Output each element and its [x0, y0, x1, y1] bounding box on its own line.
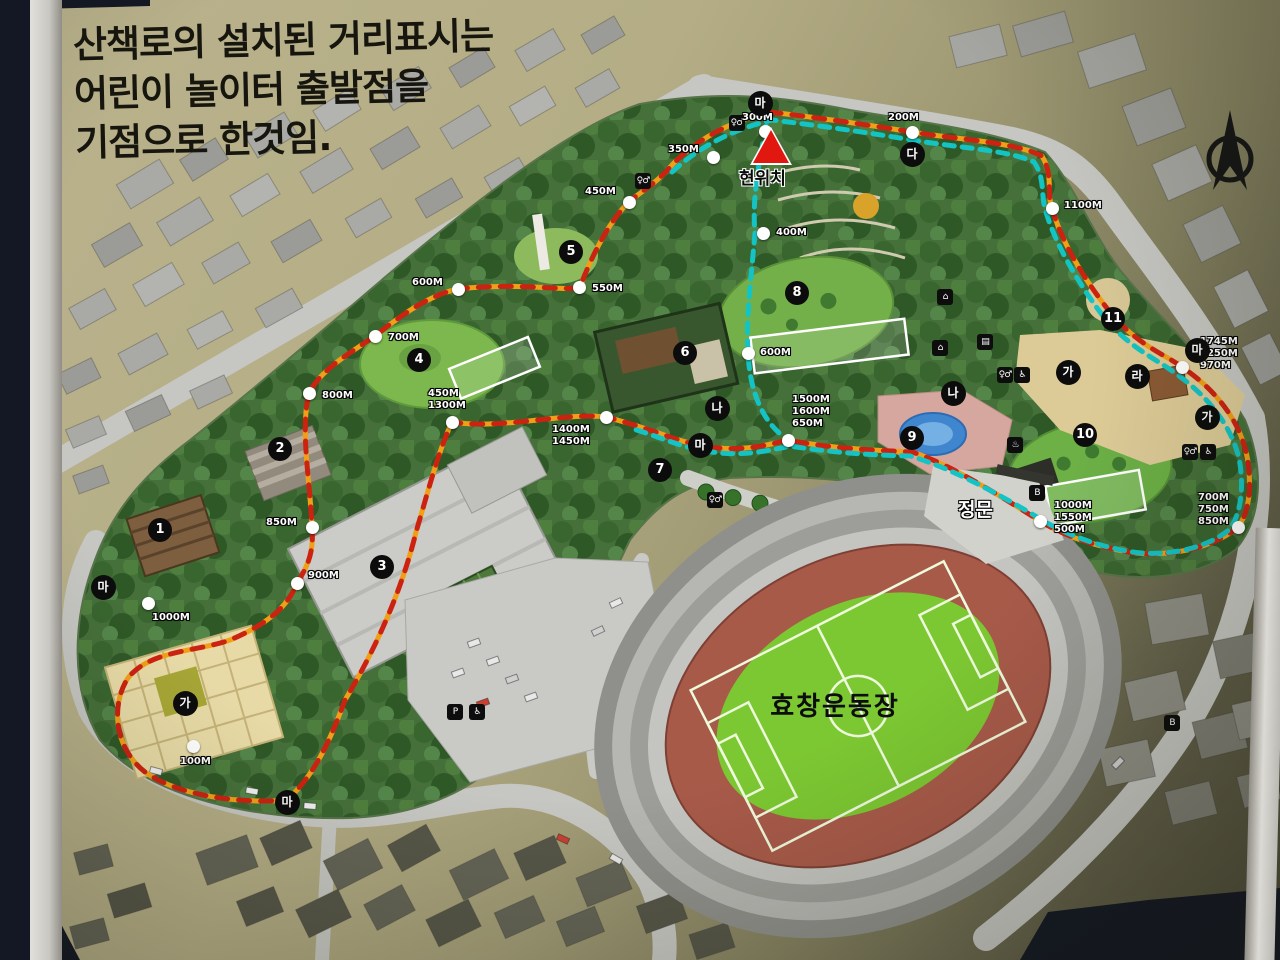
current-location-label: 현위치: [739, 164, 786, 189]
map-marker-나: 나: [941, 381, 966, 406]
trail-distance-node: [1034, 515, 1047, 528]
parking-icon: P: [447, 704, 463, 720]
map-marker-7: 7: [648, 458, 672, 482]
distance-label: 900M: [308, 570, 339, 582]
map-marker-가: 가: [173, 691, 198, 716]
trail-distance-node: [707, 151, 720, 164]
map-marker-다: 다: [900, 142, 925, 167]
distance-label: 450M1300M: [428, 388, 466, 412]
distance-label: 1400M1450M: [552, 424, 590, 448]
map-marker-마: 마: [688, 433, 713, 458]
distance-label: 600M: [412, 277, 443, 289]
park-map-photo: 산책로의 설치된 거리표시는 어린이 놀이터 출발점을 기점으로 한것임. 현위…: [0, 0, 1280, 960]
map-marker-4: 4: [407, 348, 431, 372]
trail-distance-node: [573, 281, 586, 294]
distance-label: 1000M: [152, 612, 190, 624]
screen-bezel-left: [30, 0, 62, 960]
trail-distance-node: [906, 126, 919, 139]
wheelchair-icon: ♿: [1014, 367, 1030, 383]
trail-distance-node: [291, 577, 304, 590]
wheelchair-icon: ♿: [469, 704, 485, 720]
trail-distance-node: [369, 330, 382, 343]
trail-distance-node: [142, 597, 155, 610]
distance-label: 200M: [888, 112, 919, 124]
restroom-icon: ♀♂: [1182, 444, 1198, 460]
current-location-triangle-icon: [753, 130, 789, 163]
restroom-icon: ♀♂: [635, 173, 651, 189]
map-marker-라: 라: [1125, 364, 1150, 389]
map-marker-1: 1: [148, 518, 172, 542]
map-note-line: 산책로의 설치된 거리표시는: [72, 11, 493, 70]
map-marker-11: 11: [1101, 307, 1125, 331]
bus-stop-icon: B: [1164, 715, 1180, 731]
map-marker-가: 가: [1195, 405, 1220, 430]
trail-distance-node: [623, 196, 636, 209]
trail-distance-node: [1046, 202, 1059, 215]
distance-label: 700M: [388, 332, 419, 344]
map-marker-2: 2: [268, 437, 292, 461]
kiosk-icon: ▤: [977, 334, 993, 350]
stadium-label: 효창운동장: [735, 686, 935, 723]
trail-distance-node: [1176, 361, 1189, 374]
photo-frame-left: [0, 0, 30, 960]
map-marker-6: 6: [673, 341, 697, 365]
distance-label: 800M: [322, 390, 353, 402]
trail-distance-node: [303, 387, 316, 400]
trail-distance-node: [1232, 521, 1245, 534]
distance-label: 700M750M850M: [1198, 492, 1229, 529]
trail-distance-node: [187, 740, 200, 753]
distance-label: 450M: [585, 186, 616, 198]
map-marker-8: 8: [785, 281, 809, 305]
bus-stop-icon: B: [1029, 485, 1045, 501]
map-marker-마: 마: [748, 91, 773, 116]
map-note: 산책로의 설치된 거리표시는 어린이 놀이터 출발점을 기점으로 한것임.: [72, 11, 495, 168]
restroom-icon: ♀♂: [997, 367, 1013, 383]
distance-label: 850M: [266, 517, 297, 529]
distance-label: 1000M1550M500M: [1054, 500, 1092, 537]
distance-label: 1500M1600M650M: [792, 394, 830, 431]
distance-label: 550M: [592, 283, 623, 295]
map-marker-5: 5: [559, 240, 583, 264]
trail-distance-node: [446, 416, 459, 429]
map-marker-마: 마: [91, 575, 116, 600]
main-gate-label: 정문: [958, 495, 993, 522]
map-note-line: 기점으로 한것임.: [75, 110, 496, 169]
restroom-icon: ♀♂: [707, 492, 723, 508]
wheelchair-icon: ♿: [1200, 444, 1216, 460]
distance-label: 350M: [668, 144, 699, 156]
map-marker-9: 9: [900, 426, 924, 450]
north-arrow-icon: [1200, 104, 1260, 204]
map-marker-나: 나: [705, 396, 730, 421]
trail-distance-node: [742, 347, 755, 360]
fountain-icon: ♨: [1007, 437, 1023, 453]
map-marker-마: 마: [275, 790, 300, 815]
map-marker-가: 가: [1056, 360, 1081, 385]
distance-label: 400M: [776, 227, 807, 239]
trail-distance-node: [306, 521, 319, 534]
distance-label: 600M: [760, 347, 791, 359]
trail-distance-node: [757, 227, 770, 240]
pavilion-icon: ⌂: [932, 340, 948, 356]
distance-label: 1100M: [1064, 200, 1102, 212]
map-marker-3: 3: [370, 555, 394, 579]
pavilion-icon: ⌂: [937, 289, 953, 305]
trail-distance-node: [782, 434, 795, 447]
distance-label: 100M: [180, 756, 211, 768]
map-marker-10: 10: [1073, 423, 1097, 447]
trail-distance-node: [452, 283, 465, 296]
map-marker-마: 마: [1185, 338, 1210, 363]
trail-distance-node: [600, 411, 613, 424]
map-overlay: 산책로의 설치된 거리표시는 어린이 놀이터 출발점을 기점으로 한것임. 현위…: [0, 0, 1280, 960]
